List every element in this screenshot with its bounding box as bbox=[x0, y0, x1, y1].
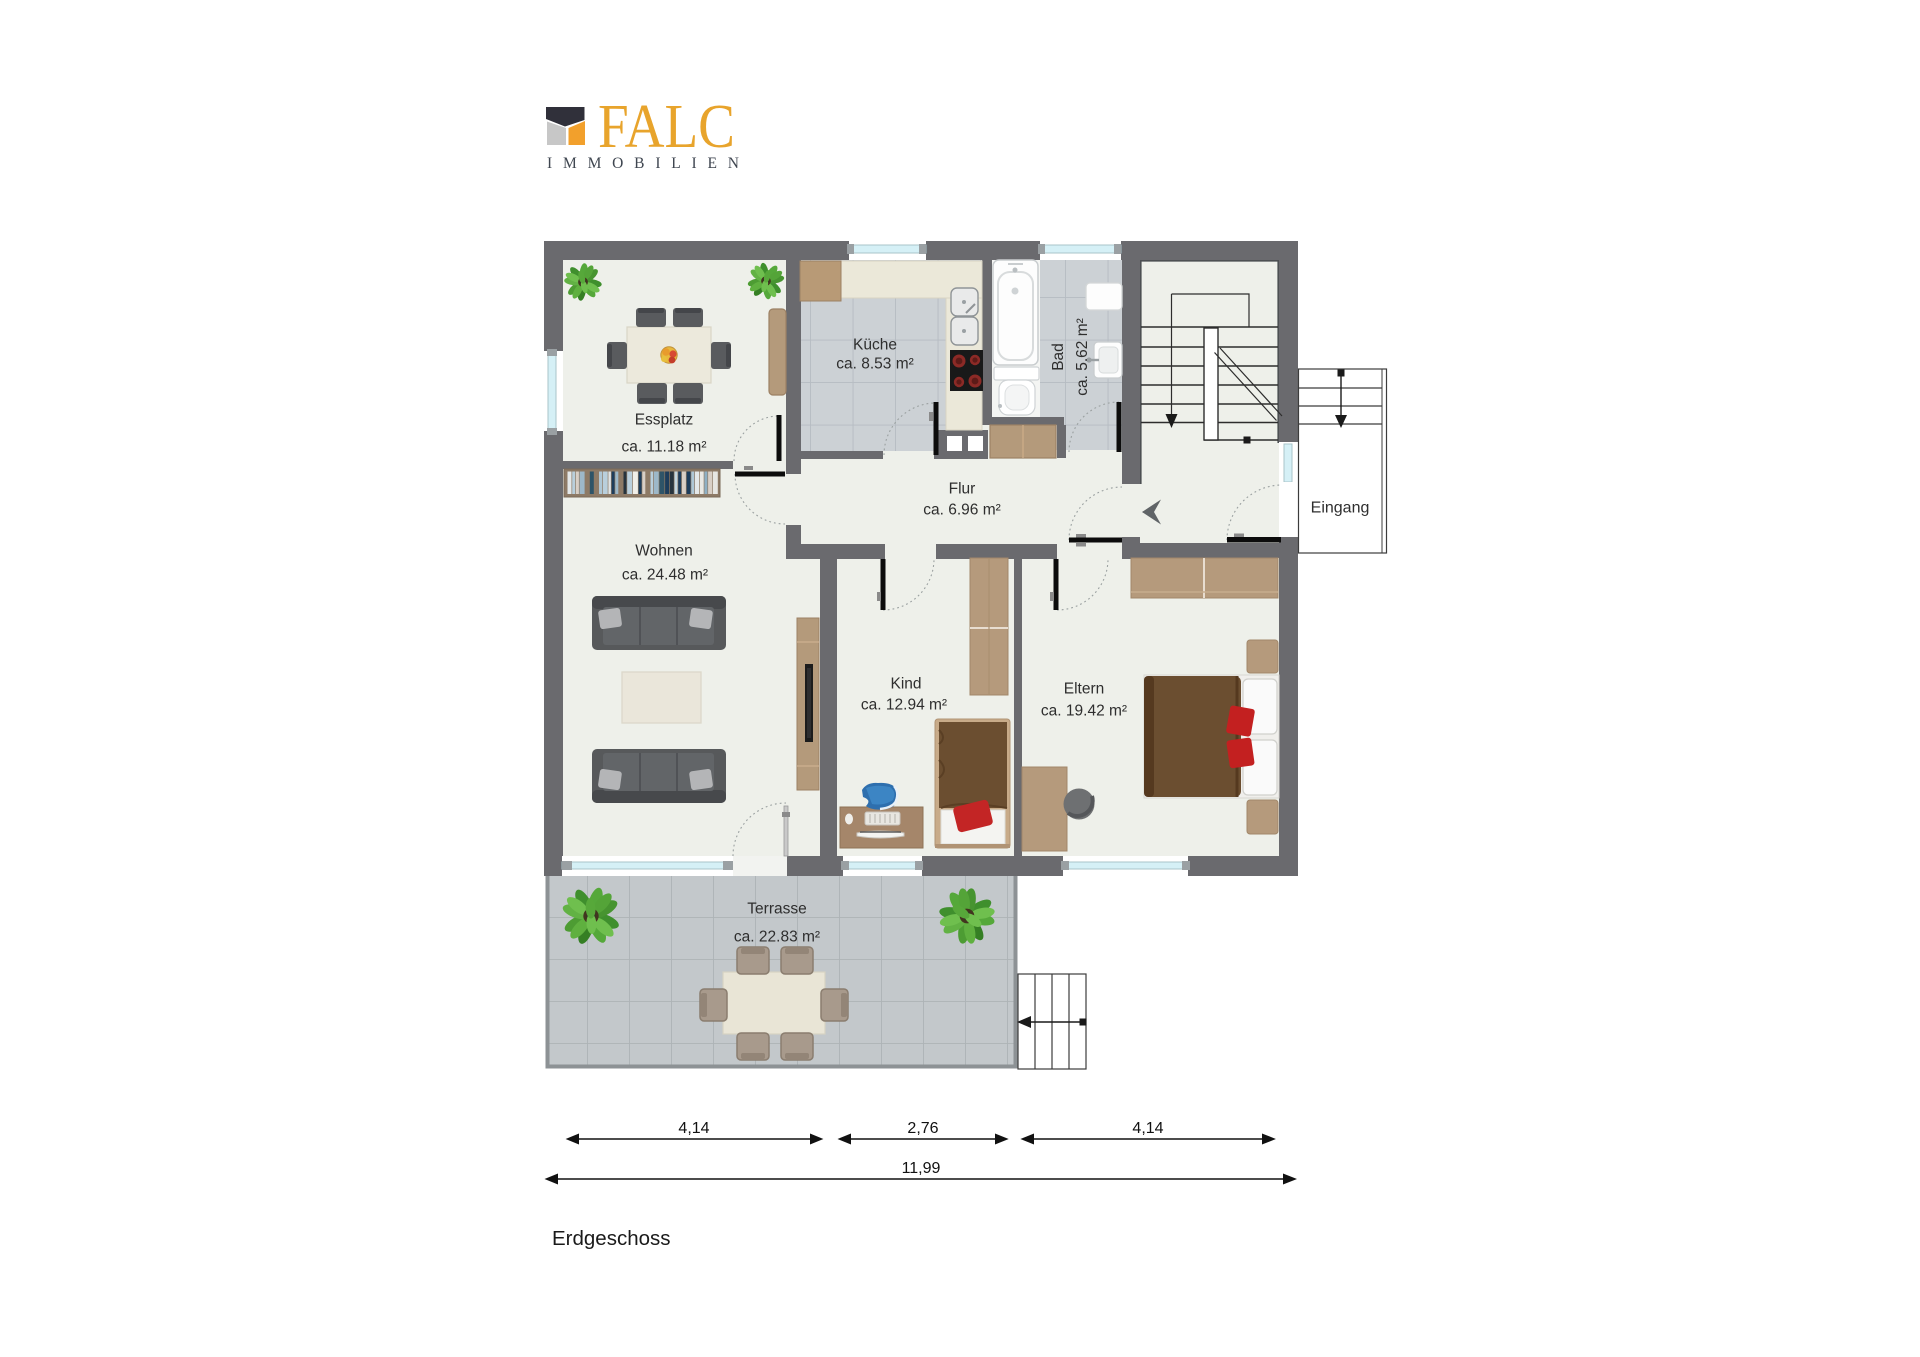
svg-text:2,76: 2,76 bbox=[907, 1120, 938, 1137]
svg-text:ca. 6.96 m²: ca. 6.96 m² bbox=[923, 502, 1001, 519]
svg-text:Terrasse: Terrasse bbox=[747, 901, 806, 918]
svg-text:ca. 12.94 m²: ca. 12.94 m² bbox=[861, 697, 947, 714]
svg-text:Erdgeschoss: Erdgeschoss bbox=[552, 1227, 671, 1250]
svg-text:FALC: FALC bbox=[598, 93, 735, 161]
svg-text:4,14: 4,14 bbox=[678, 1120, 709, 1137]
svg-text:ca. 5.62 m²: ca. 5.62 m² bbox=[1074, 318, 1091, 396]
svg-text:Eingang: Eingang bbox=[1311, 500, 1370, 517]
svg-text:IMMOBILIEN: IMMOBILIEN bbox=[547, 155, 739, 172]
svg-text:Kind: Kind bbox=[890, 676, 921, 693]
svg-text:ca. 8.53 m²: ca. 8.53 m² bbox=[836, 356, 914, 373]
svg-text:11,99: 11,99 bbox=[902, 1160, 941, 1177]
svg-text:Bad: Bad bbox=[1050, 343, 1067, 371]
svg-text:ca. 11.18 m²: ca. 11.18 m² bbox=[621, 439, 706, 456]
svg-text:4,14: 4,14 bbox=[1132, 1120, 1163, 1137]
svg-text:Eltern: Eltern bbox=[1064, 681, 1105, 698]
svg-text:Essplatz: Essplatz bbox=[635, 412, 694, 429]
svg-text:ca. 24.48 m²: ca. 24.48 m² bbox=[622, 567, 708, 584]
svg-text:Küche: Küche bbox=[853, 337, 897, 354]
svg-text:ca. 19.42 m²: ca. 19.42 m² bbox=[1041, 703, 1127, 720]
svg-text:ca. 22.83 m²: ca. 22.83 m² bbox=[734, 929, 820, 946]
svg-text:Flur: Flur bbox=[949, 481, 976, 498]
svg-text:Wohnen: Wohnen bbox=[635, 543, 692, 560]
